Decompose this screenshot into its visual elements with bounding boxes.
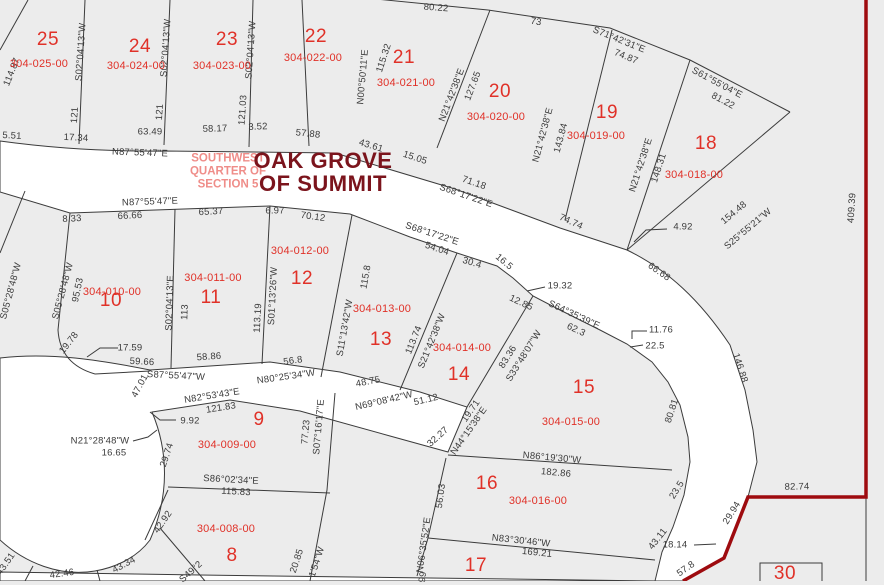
parcel-id: 304-008-00 — [197, 523, 255, 535]
measurement-label: 113.19 — [252, 303, 265, 333]
lot-number: 8 — [226, 545, 237, 567]
parcel-id: 304-020-00 — [467, 111, 525, 123]
parcel-id: 304-014-00 — [433, 342, 491, 354]
measurement-label: 4.92 — [673, 222, 692, 233]
measurement-label: 19.32 — [548, 281, 573, 292]
measurement-label: 121 — [69, 106, 81, 123]
parcel-id: 304-015-00 — [542, 416, 600, 428]
measurement-label: 77.23 — [299, 419, 312, 445]
lot-number: 16 — [476, 473, 498, 495]
parcel-id: 304-019-00 — [567, 130, 625, 142]
lot-number: 11 — [201, 287, 222, 309]
measurement-label: 17.59 — [118, 343, 143, 354]
measurement-label: 82.74 — [785, 481, 810, 492]
measurement-label: 65.37 — [198, 206, 223, 218]
parcel-id: 304-012-00 — [271, 245, 329, 257]
lot-number: 12 — [291, 268, 313, 290]
parcel-id: 304-024-00 — [107, 60, 165, 72]
lot-number: 25 — [37, 29, 59, 51]
parcel-id: 304-023-00 — [193, 60, 251, 72]
lot-number: 18 — [695, 133, 717, 155]
measurement-label: 11.76 — [649, 325, 673, 336]
measurement-label: 66.66 — [117, 210, 142, 222]
measurement-label: N87°55'47"E — [122, 196, 178, 209]
measurement-label: 5.51 — [2, 130, 22, 142]
lot-number: 24 — [129, 36, 151, 58]
parcel-id: 304-018-00 — [665, 169, 723, 181]
measurement-label: 17.34 — [63, 132, 88, 144]
measurement-label: 18.14 — [663, 540, 688, 551]
measurement-label: 58.17 — [202, 123, 227, 135]
measurement-label: 115.83 — [221, 486, 251, 499]
measurement-label: 409.39 — [845, 193, 858, 224]
lot-number: 30 — [774, 563, 796, 585]
lot-number: 22 — [305, 26, 327, 48]
measurement-label: 73 — [530, 16, 543, 29]
measurement-label: 59.66 — [129, 356, 154, 368]
plat-title: OAK GROVE OF SUMMIT — [254, 149, 393, 195]
parcel-id: 304-021-00 — [377, 77, 435, 89]
parcel-id: 304-022-00 — [284, 52, 342, 64]
lot-number: 14 — [448, 364, 470, 386]
lot-number: 20 — [489, 81, 511, 103]
measurement-label: 9.92 — [180, 416, 199, 427]
measurement-label: 3.52 — [248, 121, 268, 133]
measurement-label: 99 — [417, 571, 429, 583]
lot-number: 19 — [596, 102, 618, 124]
measurement-label: 80.22 — [423, 2, 448, 15]
parcel-id: 304-013-00 — [353, 303, 411, 315]
measurement-label: N87°55'47"E — [112, 147, 168, 160]
measurement-label: 22.5 — [645, 341, 664, 352]
lot-number: 13 — [370, 329, 392, 351]
measurement-label: 113 — [179, 304, 191, 320]
lot-number: 21 — [393, 47, 415, 69]
measurement-label: N21°28'48"W — [71, 436, 130, 447]
measurement-label: 6.97 — [265, 206, 284, 217]
parcel-id: 304-010-00 — [83, 286, 141, 298]
lot-number: 9 — [253, 409, 264, 431]
measurement-label: S02°04'13"E — [164, 275, 177, 331]
lot-number: 15 — [573, 377, 595, 399]
parcel-id: 304-025-00 — [10, 58, 68, 70]
measurement-label: 58.86 — [196, 351, 221, 364]
parcel-id: 304-011-00 — [184, 272, 241, 284]
measurement-label: 63.49 — [138, 127, 163, 138]
parcel-id: 304-009-00 — [198, 439, 256, 451]
measurement-label: 16.65 — [102, 448, 127, 459]
measurement-label: 121 — [154, 103, 166, 120]
lot-number: 23 — [216, 29, 238, 51]
measurement-label: 8.33 — [62, 213, 82, 225]
plat-map: SOUTHWEST QUARTER OF SECTION 5 OAK GROVE… — [0, 0, 884, 581]
lot-number: 17 — [465, 555, 487, 577]
parcel-id: 304-016-00 — [509, 495, 567, 507]
